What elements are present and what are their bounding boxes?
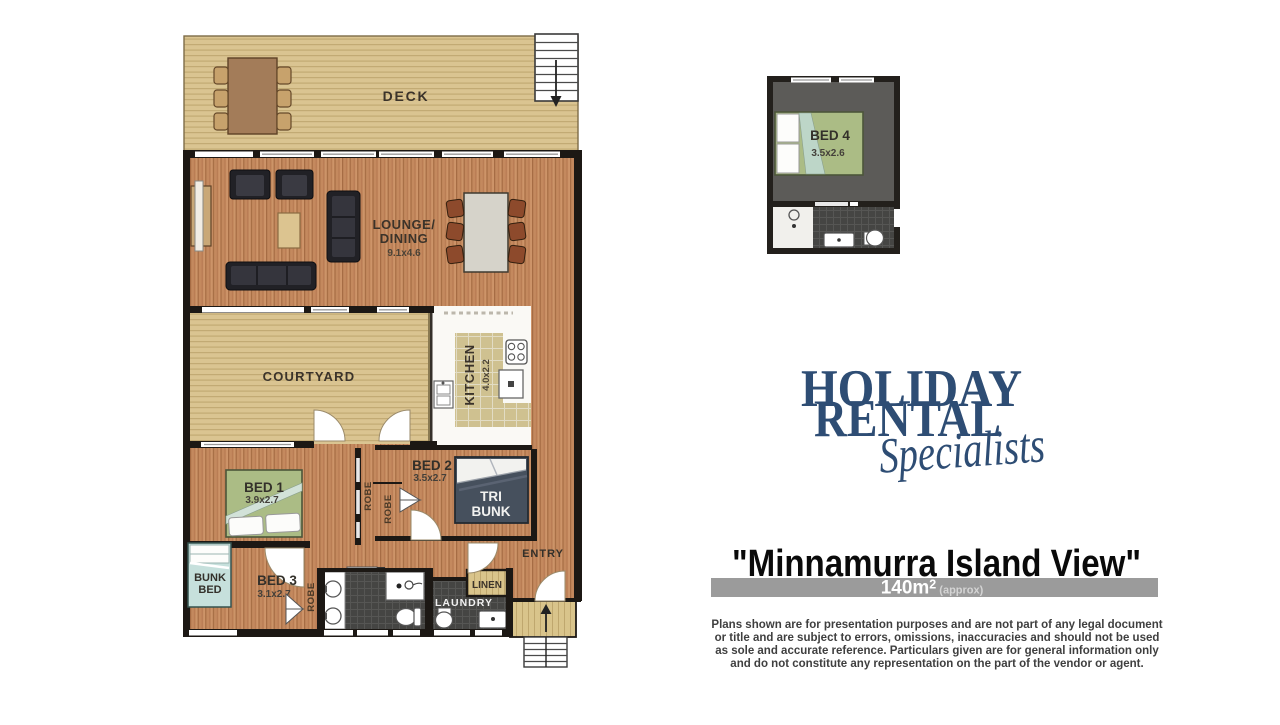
svg-text:Plans shown are for presentati: Plans shown are for presentation purpose… xyxy=(711,619,1162,631)
svg-text:LAUNDRY: LAUNDRY xyxy=(435,597,493,609)
svg-text:3.5x2.6: 3.5x2.6 xyxy=(811,148,845,159)
svg-text:BUNK: BUNK xyxy=(472,504,511,519)
svg-text:BED 3: BED 3 xyxy=(257,573,297,588)
svg-text:3.9x2.7: 3.9x2.7 xyxy=(245,495,279,506)
svg-text:BED 4: BED 4 xyxy=(810,128,850,143)
svg-text:BED 1: BED 1 xyxy=(244,480,284,495)
svg-text:ROBE: ROBE xyxy=(306,582,317,611)
svg-text:BUNK: BUNK xyxy=(194,572,226,584)
svg-text:9.1x4.6: 9.1x4.6 xyxy=(387,248,421,259)
svg-text:or title and are subject to er: or title and are subject to errors, omis… xyxy=(715,632,1160,644)
svg-text:DECK: DECK xyxy=(383,88,430,104)
svg-text:BED: BED xyxy=(198,584,221,596)
svg-text:Specialists: Specialists xyxy=(877,416,1047,483)
svg-text:TRI: TRI xyxy=(480,489,502,504)
svg-text:COURTYARD: COURTYARD xyxy=(263,369,356,384)
svg-text:LINEN: LINEN xyxy=(472,580,502,591)
svg-text:ROBE: ROBE xyxy=(383,494,394,523)
svg-text:LOUNGE/: LOUNGE/ xyxy=(373,217,436,232)
svg-text:4.0x2.2: 4.0x2.2 xyxy=(481,359,492,391)
svg-text:BED 2: BED 2 xyxy=(412,458,452,473)
svg-text:ROBE: ROBE xyxy=(363,481,374,510)
svg-text:KITCHEN: KITCHEN xyxy=(462,344,477,405)
svg-text:DINING: DINING xyxy=(380,231,429,246)
svg-text:3.5x2.7: 3.5x2.7 xyxy=(413,473,447,484)
svg-text:as sole and accurate reference: as sole and accurate reference. Particul… xyxy=(715,645,1159,657)
svg-text:ENTRY: ENTRY xyxy=(522,548,564,560)
svg-text:and do not constitute any repr: and do not constitute any representation… xyxy=(730,658,1143,670)
